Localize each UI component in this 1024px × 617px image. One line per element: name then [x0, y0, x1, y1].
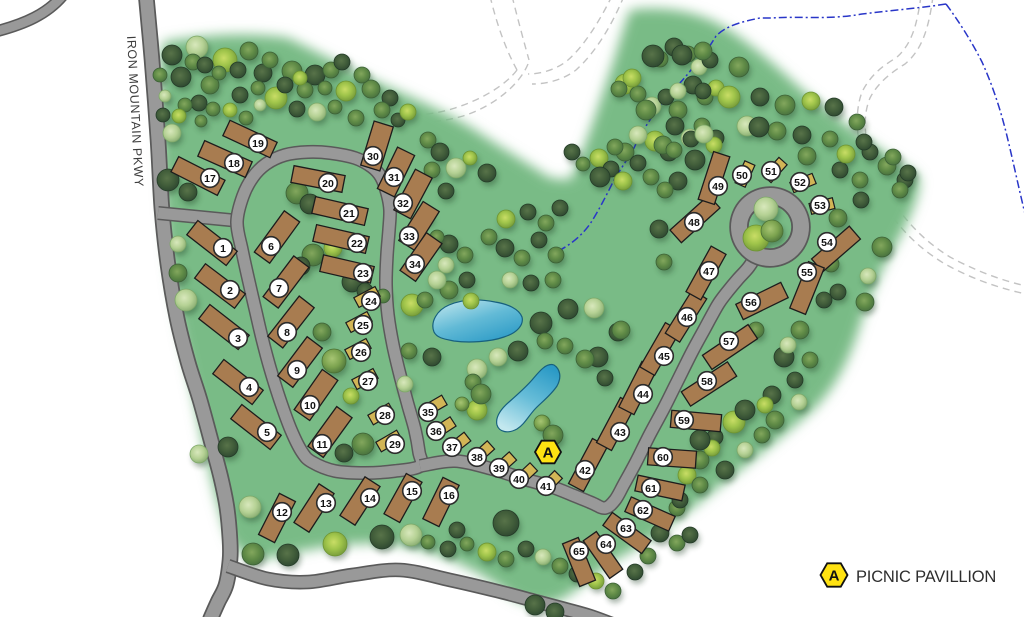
svg-text:48: 48 [688, 217, 700, 229]
svg-text:27: 27 [362, 376, 374, 388]
svg-text:14: 14 [364, 493, 376, 505]
svg-text:19: 19 [252, 138, 264, 150]
svg-text:45: 45 [658, 351, 670, 363]
svg-text:1: 1 [220, 243, 226, 255]
svg-text:59: 59 [678, 415, 690, 427]
svg-text:54: 54 [821, 237, 833, 249]
svg-text:50: 50 [736, 170, 748, 182]
svg-text:60: 60 [657, 452, 669, 464]
svg-text:26: 26 [355, 347, 367, 359]
svg-text:44: 44 [637, 389, 649, 401]
svg-text:61: 61 [645, 483, 657, 495]
svg-text:16: 16 [443, 490, 455, 502]
svg-text:33: 33 [403, 231, 415, 243]
svg-text:22: 22 [351, 238, 363, 250]
svg-text:41: 41 [540, 481, 552, 493]
svg-text:51: 51 [765, 166, 777, 178]
svg-text:43: 43 [614, 427, 626, 439]
svg-text:10: 10 [304, 400, 316, 412]
svg-text:36: 36 [430, 426, 442, 438]
svg-text:4: 4 [246, 382, 252, 394]
svg-text:11: 11 [316, 439, 327, 451]
svg-text:46: 46 [681, 312, 693, 324]
svg-text:31: 31 [388, 172, 400, 184]
svg-text:20: 20 [322, 178, 334, 190]
svg-text:56: 56 [745, 297, 757, 309]
svg-text:40: 40 [513, 474, 525, 486]
svg-text:39: 39 [493, 463, 505, 475]
svg-text:2: 2 [227, 285, 233, 297]
svg-text:37: 37 [446, 442, 458, 454]
svg-text:18: 18 [228, 158, 240, 170]
svg-text:PICNIC PAVILLION: PICNIC PAVILLION [856, 568, 996, 586]
svg-text:42: 42 [579, 465, 591, 477]
svg-text:13: 13 [320, 498, 332, 510]
svg-text:55: 55 [801, 267, 813, 279]
svg-text:A: A [543, 445, 554, 462]
svg-text:12: 12 [276, 507, 288, 519]
svg-text:9: 9 [294, 365, 300, 377]
svg-text:6: 6 [268, 241, 274, 253]
svg-text:8: 8 [284, 327, 290, 339]
svg-text:63: 63 [620, 523, 632, 535]
svg-text:49: 49 [712, 181, 724, 193]
svg-text:23: 23 [357, 268, 369, 280]
svg-text:17: 17 [204, 173, 216, 185]
svg-text:58: 58 [701, 376, 713, 388]
svg-text:57: 57 [723, 336, 735, 348]
svg-text:64: 64 [600, 539, 612, 551]
svg-text:47: 47 [703, 266, 715, 278]
svg-text:32: 32 [397, 198, 409, 210]
svg-text:29: 29 [389, 439, 401, 451]
svg-text:25: 25 [357, 320, 369, 332]
svg-text:34: 34 [409, 259, 421, 271]
svg-text:5: 5 [264, 427, 270, 439]
svg-text:21: 21 [343, 208, 355, 220]
svg-text:A: A [829, 568, 840, 585]
svg-text:38: 38 [471, 452, 483, 464]
svg-text:35: 35 [422, 407, 434, 419]
svg-text:62: 62 [637, 505, 649, 517]
svg-text:7: 7 [276, 283, 282, 295]
svg-text:53: 53 [814, 200, 826, 212]
svg-text:15: 15 [406, 486, 418, 498]
svg-text:30: 30 [367, 151, 379, 163]
svg-text:65: 65 [573, 546, 585, 558]
svg-text:3: 3 [235, 333, 241, 345]
svg-text:52: 52 [794, 177, 806, 189]
svg-text:28: 28 [379, 410, 391, 422]
svg-text:24: 24 [365, 296, 377, 308]
